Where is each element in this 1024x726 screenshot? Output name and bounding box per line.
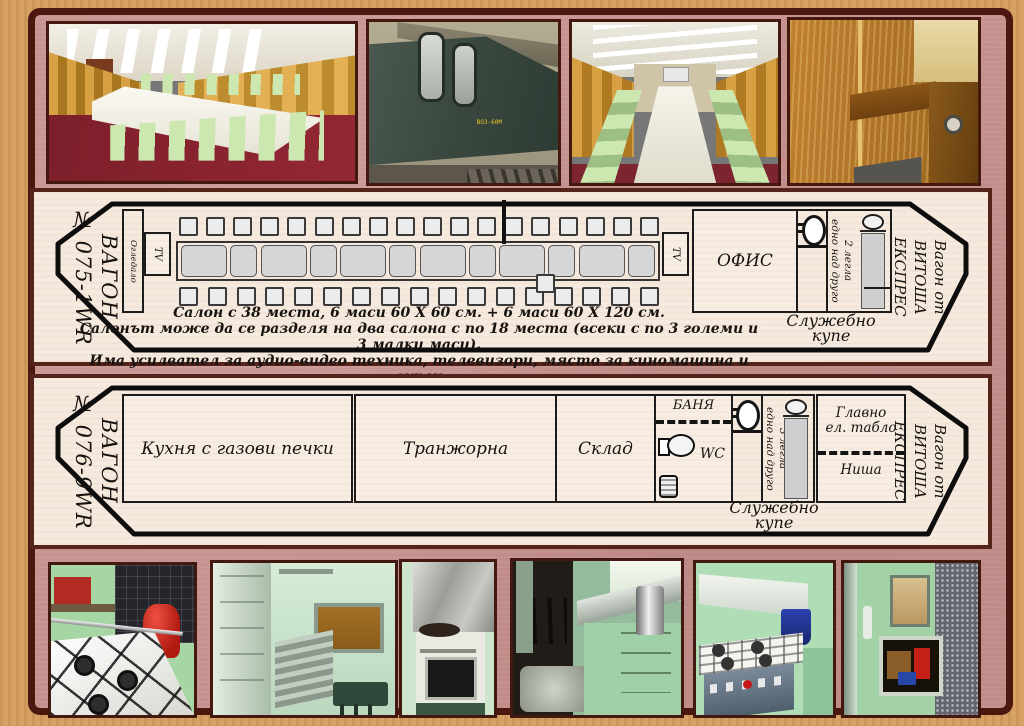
corridor-strip	[516, 561, 533, 653]
salon-captions: Салон с 38 места, 6 маси 60 Х 60 см. + 6…	[74, 305, 764, 385]
beds-desc: едно над друго	[763, 396, 776, 501]
mirror-strip: Огледало	[122, 209, 144, 313]
seat	[396, 217, 415, 236]
photo-stove-with-hood	[693, 560, 836, 718]
mattress	[861, 233, 885, 309]
wagon-window	[452, 43, 477, 107]
wagon-title: ВАГОН	[96, 392, 122, 530]
salon-seats-top	[179, 216, 659, 236]
seat	[342, 217, 361, 236]
seat	[496, 287, 515, 306]
brand-line1: Вагон от	[930, 208, 950, 346]
office-label: ОФИС	[717, 251, 773, 271]
green-chairs-far	[141, 74, 300, 94]
seat	[323, 287, 342, 306]
table-top	[579, 245, 625, 277]
ceiling-pipe	[279, 569, 334, 574]
bench-seat	[333, 682, 388, 706]
seat	[438, 287, 457, 306]
table-top	[340, 245, 386, 277]
seat	[179, 217, 198, 236]
seat	[294, 287, 313, 306]
bunk-bed	[783, 398, 809, 499]
blue-label	[898, 672, 917, 684]
seat	[233, 217, 252, 236]
small-sink-icon	[659, 475, 678, 498]
table-top	[181, 245, 227, 277]
bench-legs	[340, 704, 380, 715]
seat	[287, 217, 306, 236]
tv-label: TV	[670, 247, 681, 261]
table-top	[389, 245, 416, 277]
seat	[640, 217, 659, 236]
seat	[640, 287, 659, 306]
mattress	[784, 418, 808, 499]
carving-room: Транжорна	[354, 394, 557, 503]
wc-label: WC	[700, 446, 725, 462]
bunk-bed	[860, 213, 886, 309]
tv-box-right: TV	[662, 232, 689, 276]
wagon-076-diagram-panel: ВАГОН № 076-9WR Кухня с газови печки Тра…	[30, 374, 992, 549]
seat	[586, 217, 605, 236]
chrome-urn	[636, 586, 665, 635]
door-frame	[844, 563, 857, 715]
photo-wood-compartment	[787, 17, 981, 186]
caption-split: Салонът може да се разделя на два салона…	[74, 321, 764, 353]
beds-desc: едно над друго	[828, 211, 841, 311]
tv-label: TV	[152, 247, 163, 261]
wagon-075-diagram-panel: ВАГОН № 075-1WR Огледало TV TV ОФИС 2 ле…	[30, 188, 992, 366]
burner	[721, 657, 734, 670]
photo-wagon-exterior: ВОЗ-60М	[366, 19, 561, 186]
wagon-076-number: ВАГОН № 076-9WR	[70, 392, 122, 530]
brand-line1: Вагон от	[930, 392, 950, 530]
table-top	[230, 245, 257, 277]
burner	[117, 670, 138, 691]
seat	[467, 287, 486, 306]
metal-backsplash	[413, 562, 494, 632]
storage-room: Склад	[555, 394, 656, 503]
service-label-line2: купе	[714, 515, 834, 530]
seat	[237, 287, 256, 306]
beds-note: 2 легла едно над друго	[828, 211, 854, 311]
storage-label: Склад	[578, 439, 633, 459]
frying-pan	[419, 623, 460, 637]
seat	[613, 217, 632, 236]
small-window	[890, 575, 931, 627]
ac-unit	[663, 67, 690, 82]
seat	[352, 287, 371, 306]
service-compartment-075: 2 легла едно над друго	[796, 209, 892, 313]
vitosha-express-label: Вагон от ВИТОША ЕКСПРЕС	[900, 392, 950, 530]
salon-tables-row	[176, 241, 660, 281]
window-shade	[914, 20, 978, 82]
red-items	[54, 577, 91, 604]
salon-partition	[502, 200, 506, 244]
upturned-chair-legs	[533, 598, 567, 644]
wagon-window	[418, 32, 445, 102]
photo-stove-with-oven	[399, 559, 497, 718]
kitchen-room: Кухня с газови печки	[122, 394, 353, 503]
green-counter	[803, 648, 833, 715]
carving-label: Транжорна	[403, 439, 508, 459]
blanket-line	[783, 415, 809, 417]
photo-kitchen-window-bench	[210, 560, 398, 718]
service-compartment-076: 3 легла едно над друго	[731, 394, 815, 503]
salon-seats-bottom	[179, 286, 659, 306]
kitchen-label: Кухня с газови печки	[141, 439, 334, 459]
toilet-icon	[667, 434, 695, 457]
mirror-label: Огледало	[128, 240, 138, 283]
tv-box-left: TV	[144, 232, 171, 276]
seat	[582, 287, 601, 306]
beds-count: 2 легла	[841, 211, 854, 311]
wagon-marking: ВОЗ-60М	[477, 119, 502, 126]
oven-window	[425, 657, 477, 700]
stove-base	[416, 703, 485, 715]
seat-extra	[536, 274, 555, 293]
wagon-number: № 076-9WR	[70, 392, 96, 530]
burner	[74, 655, 95, 676]
oven-handle	[420, 649, 475, 653]
album-page: ВОЗ-60М ВАГОН № 075-1WR Ог	[0, 0, 1024, 726]
photo-stove-top-cylinder	[48, 562, 197, 718]
wall-handset	[863, 606, 872, 639]
bath-wc-room: БАНЯ WC	[654, 394, 733, 503]
seat	[206, 217, 225, 236]
seat	[611, 287, 630, 306]
table-top	[420, 245, 466, 277]
burner	[712, 644, 725, 657]
bath-divider	[656, 420, 731, 424]
seat	[531, 217, 550, 236]
photo-dining-salon-front	[569, 19, 781, 186]
table-top	[469, 245, 496, 277]
seat	[208, 287, 227, 306]
cabinet-lines	[220, 575, 264, 697]
photo-phone-niche	[841, 560, 981, 718]
seat	[423, 217, 442, 236]
pillow-icon	[862, 214, 884, 230]
burner	[751, 641, 764, 654]
table-top	[310, 245, 337, 277]
metal-rack	[275, 630, 333, 709]
brand-line3: ЕКСПРЕС	[890, 208, 910, 346]
seat	[265, 287, 284, 306]
rails	[467, 169, 558, 183]
seat	[315, 217, 334, 236]
table-top	[628, 245, 655, 277]
seat	[381, 287, 400, 306]
service-compartment-label: Служебно купе	[714, 500, 834, 530]
seat	[410, 287, 429, 306]
table-top	[548, 245, 575, 277]
red-knob	[743, 680, 752, 689]
door-line	[864, 287, 890, 289]
seat	[559, 217, 578, 236]
photo-counter-with-urn	[510, 558, 684, 718]
seat	[504, 217, 523, 236]
office-room: ОФИС	[692, 209, 798, 313]
vitosha-express-label: Вагон от ВИТОША ЕКСПРЕС	[900, 208, 950, 346]
seat	[554, 287, 573, 306]
brand-line2: ВИТОША	[910, 208, 930, 346]
seat	[369, 217, 388, 236]
shelf	[51, 604, 115, 612]
bath-label: БАНЯ	[673, 398, 714, 413]
sink-icon	[736, 400, 760, 431]
service-compartment-label: Служебно купе	[776, 313, 886, 343]
table-top	[261, 245, 307, 277]
drawer-lines	[621, 632, 671, 694]
brand-line2: ВИТОША	[910, 392, 930, 530]
pillow-icon	[785, 399, 807, 415]
seat	[477, 217, 496, 236]
seat	[260, 217, 279, 236]
caption-seats: Салон с 38 места, 6 маси 60 Х 60 см. + 6…	[74, 305, 764, 321]
blanket-line	[860, 230, 886, 232]
photo-dining-salon-side	[46, 21, 358, 184]
sink-icon	[802, 215, 826, 246]
brand-line3: ЕКСПРЕС	[890, 392, 910, 530]
round-lock	[944, 115, 963, 134]
wall-line	[798, 245, 826, 248]
seat	[179, 287, 198, 306]
service-label-line2: купе	[776, 328, 886, 343]
table-top	[499, 245, 545, 277]
wall-line	[733, 430, 761, 433]
seat	[450, 217, 469, 236]
